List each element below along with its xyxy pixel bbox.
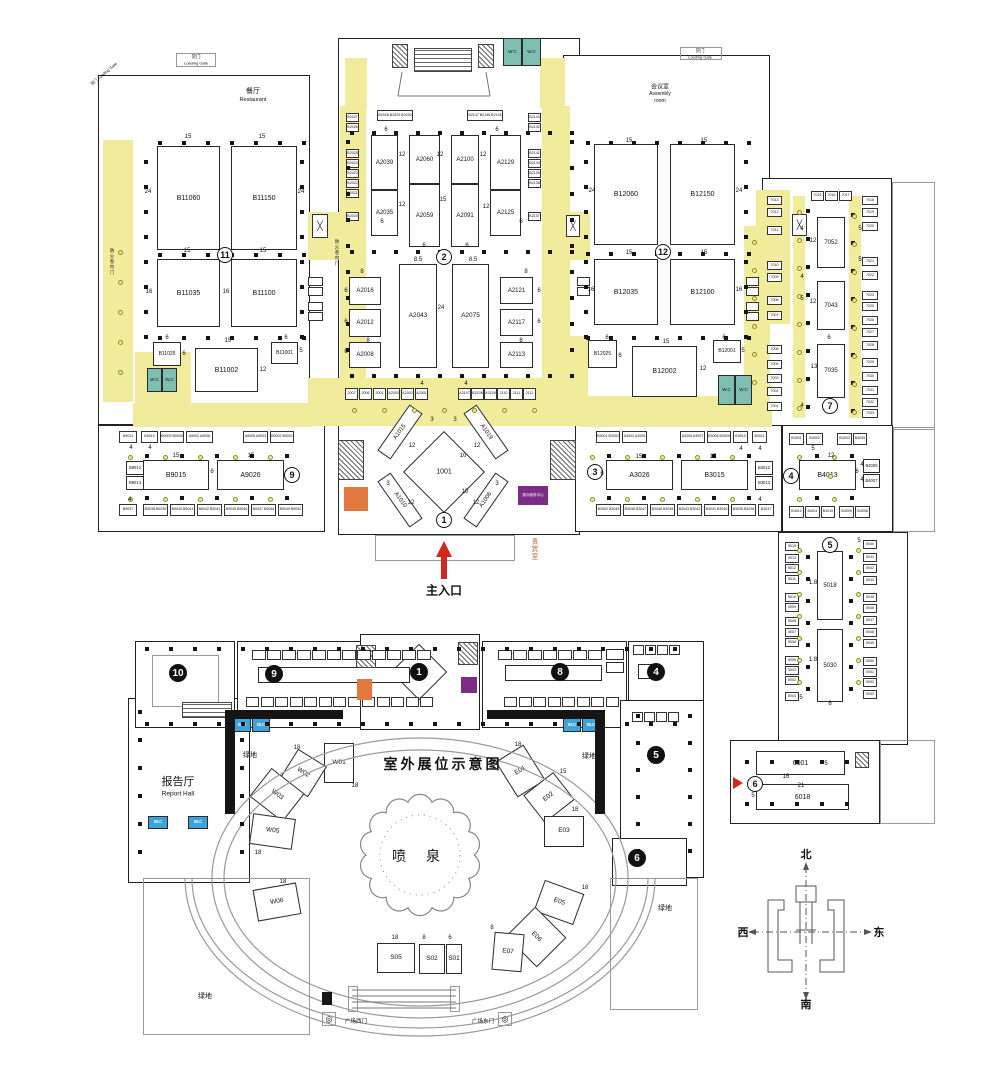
column-dot — [193, 722, 197, 726]
dimension-label: 15 — [710, 454, 717, 460]
light-symbol — [797, 266, 802, 271]
dimension-label: 4 — [739, 446, 742, 452]
dimension-label: 4 — [758, 497, 761, 503]
dimension-label: 6 — [828, 701, 831, 707]
column-dot — [609, 252, 613, 256]
dimension-label: 15 — [259, 134, 266, 140]
column-dot — [849, 577, 853, 581]
column-dot — [285, 454, 289, 458]
column-dot — [570, 348, 574, 352]
column-dot — [649, 722, 653, 726]
light-symbol — [695, 455, 700, 460]
light-symbol — [752, 380, 757, 385]
column-dot — [144, 335, 148, 339]
restaurant-label: 餐厅 — [246, 86, 260, 96]
column-dot — [394, 131, 398, 135]
column-dot — [570, 250, 574, 254]
light-symbol — [695, 497, 700, 502]
zone-circle-5: 5 — [647, 746, 665, 764]
light-symbol — [752, 324, 757, 329]
column-dot — [241, 647, 245, 651]
column-dot — [815, 496, 819, 500]
column-dot — [482, 250, 486, 254]
light-symbol — [472, 408, 477, 413]
column-dot — [688, 741, 692, 745]
green-space-label: 绿地 — [658, 903, 672, 913]
plaza-west-gate-label: 广场西门 — [345, 1017, 367, 1025]
column-dot — [241, 722, 245, 726]
column-dot — [806, 555, 810, 559]
dimension-label: 18 — [572, 807, 579, 813]
zone-circle-9: 9 — [284, 467, 300, 483]
gate-symbol: ◎ — [326, 1015, 333, 1024]
column-dot — [849, 621, 853, 625]
light-symbol — [752, 352, 757, 357]
column-dot — [806, 265, 810, 269]
light-symbol — [852, 410, 857, 415]
dimension-label: 15 — [260, 248, 267, 254]
zone-circle-4: 4 — [647, 663, 665, 681]
column-dot — [346, 140, 350, 144]
column-dot — [849, 643, 853, 647]
column-dot — [144, 310, 148, 314]
light-symbol — [852, 242, 857, 247]
column-dot — [642, 496, 646, 500]
column-dot — [673, 647, 677, 651]
column-dot — [845, 802, 849, 806]
zone-circle-6: 6 — [747, 776, 763, 792]
dimension-label: 6 — [165, 335, 168, 341]
floor-plan: B11060B11150B11035B11100B11025B11001B110… — [0, 0, 1000, 1078]
column-dot — [850, 454, 854, 458]
column-dot — [570, 322, 574, 326]
dimension-label: 3 — [430, 417, 433, 423]
zone-circle-11: 11 — [217, 247, 233, 263]
light-symbol — [233, 497, 238, 502]
column-dot — [206, 336, 210, 340]
dimension-label: 10 — [462, 489, 469, 495]
light-symbol — [198, 455, 203, 460]
light-symbol — [625, 455, 630, 460]
light-symbol — [852, 326, 857, 331]
compass-north-label: 北 — [801, 846, 812, 862]
column-dot — [504, 250, 508, 254]
dimension-label: 4 — [860, 477, 863, 483]
column-dot — [372, 131, 376, 135]
dimension-label: 6 — [182, 351, 185, 357]
wc-room: W.C — [735, 375, 752, 405]
column-dot — [526, 374, 530, 378]
column-dot — [601, 722, 605, 726]
light-symbol — [856, 636, 861, 641]
column-dot — [144, 160, 148, 164]
dimension-label: 12 — [483, 204, 490, 210]
column-dot — [138, 766, 142, 770]
main-entrance-label: 主入口 — [426, 582, 462, 599]
column-dot — [806, 377, 810, 381]
wc-room: W.C — [162, 368, 177, 392]
column-dot — [553, 647, 557, 651]
dimension-label: 4 — [464, 381, 467, 387]
service-box-purple — [461, 677, 477, 693]
light-symbol — [268, 455, 273, 460]
column-dot — [806, 293, 810, 297]
light-symbol — [856, 658, 861, 663]
column-dot — [586, 252, 590, 256]
column-dot — [584, 335, 588, 339]
dimension-label: 4 — [860, 462, 863, 468]
light-symbol — [163, 497, 168, 502]
column-dot — [438, 131, 442, 135]
column-dot — [607, 496, 611, 500]
dimension-label: 15 — [626, 250, 633, 256]
column-dot — [636, 795, 640, 799]
column-dot — [806, 599, 810, 603]
column-dot — [265, 647, 269, 651]
light-symbol — [828, 474, 833, 479]
column-dot — [849, 599, 853, 603]
column-dot — [300, 335, 304, 339]
column-dot — [254, 141, 258, 145]
column-dot — [632, 336, 636, 340]
column-dot — [795, 760, 799, 764]
column-dot — [350, 374, 354, 378]
light-symbol — [660, 497, 665, 502]
dimension-label: 16 — [223, 289, 230, 295]
column-dot — [553, 722, 557, 726]
dimension-label: 24 — [589, 188, 596, 194]
light-symbol — [852, 298, 857, 303]
dimension-label: 6 — [210, 469, 213, 475]
booth-1001-label: 1001 — [436, 469, 452, 476]
column-dot — [688, 768, 692, 772]
dimension-label: 6 — [605, 335, 608, 341]
column-dot — [636, 714, 640, 718]
column-dot — [636, 768, 640, 772]
column-dot — [584, 160, 588, 164]
light-symbol — [852, 270, 857, 275]
column-dot — [744, 160, 748, 164]
column-dot — [744, 235, 748, 239]
light-symbol — [852, 214, 857, 219]
dimension-label: 18 — [280, 879, 287, 885]
zone-circle-7: 7 — [822, 398, 838, 414]
column-dot — [688, 714, 692, 718]
column-dot — [217, 722, 221, 726]
column-dot — [806, 349, 810, 353]
column-dot — [416, 250, 420, 254]
dimension-label: 13 — [811, 364, 818, 370]
fountain-label: 喷 泉 — [392, 846, 448, 866]
column-dot — [254, 336, 258, 340]
column-dot — [438, 374, 442, 378]
report-hall-label-en: Report Hall — [162, 791, 195, 798]
column-dot — [300, 210, 304, 214]
dimension-label: 5 — [811, 446, 814, 452]
column-dot — [180, 454, 184, 458]
column-dot — [460, 374, 464, 378]
column-dot — [584, 185, 588, 189]
light-symbol — [730, 455, 735, 460]
dimension-label: 5 — [741, 348, 744, 354]
dimension-label: 6 — [519, 219, 522, 225]
column-dot — [806, 621, 810, 625]
column-dot — [570, 374, 574, 378]
column-dot — [815, 454, 819, 458]
column-dot — [416, 374, 420, 378]
dimension-label: 15 — [184, 248, 191, 254]
wc-room: W.C — [522, 38, 541, 66]
dimension-label: 24 — [736, 188, 743, 194]
dimension-label: 15 — [185, 134, 192, 140]
column-dot — [526, 250, 530, 254]
column-dot — [570, 131, 574, 135]
column-dot — [240, 794, 244, 798]
column-dot — [302, 253, 306, 257]
dimension-label: 8 — [524, 269, 527, 275]
column-dot — [457, 647, 461, 651]
dimension-label: 5 — [858, 257, 861, 263]
column-dot — [278, 141, 282, 145]
dimension-label: 6 — [344, 288, 347, 294]
dimension-label: 5 — [299, 348, 302, 354]
wc-room: W.C — [147, 368, 162, 392]
column-dot — [138, 710, 142, 714]
zone-circle-1: 1 — [436, 512, 452, 528]
light-symbol — [797, 548, 802, 553]
light-symbol — [852, 354, 857, 359]
column-dot — [570, 244, 574, 248]
column-dot — [820, 802, 824, 806]
column-dot — [548, 374, 552, 378]
column-dot — [394, 374, 398, 378]
column-dot — [636, 822, 640, 826]
dimension-label: 4 — [129, 445, 132, 451]
column-dot — [182, 336, 186, 340]
light-symbol — [797, 592, 802, 597]
column-dot — [745, 760, 749, 764]
light-symbol — [752, 296, 757, 301]
column-dot — [806, 321, 810, 325]
dimension-label: 12 — [399, 152, 406, 158]
report-hall-label: 报告厅 — [162, 773, 195, 789]
wc-room: W.C — [148, 816, 168, 829]
dimension-label: 16 — [588, 287, 595, 293]
column-dot — [385, 722, 389, 726]
column-dot — [806, 687, 810, 691]
elevator-icon: ╳ — [312, 214, 328, 238]
dimension-label: 15 — [173, 453, 180, 459]
column-dot — [504, 374, 508, 378]
column-dot — [144, 260, 148, 264]
assembly-room-label-en: Assembly — [649, 91, 671, 97]
zone-circle-6: 6 — [628, 849, 646, 867]
column-dot — [215, 454, 219, 458]
light-symbol — [590, 455, 595, 460]
dimension-label: 18 — [582, 885, 589, 891]
column-dot — [182, 141, 186, 145]
green-space-label: 绿地 — [198, 991, 212, 1001]
column-dot — [138, 850, 142, 854]
dimension-label: 3 — [386, 481, 389, 487]
light-symbol — [797, 378, 802, 383]
hall-6-entrance-marker — [733, 777, 743, 789]
column-dot — [701, 336, 705, 340]
wc-room: W.C — [718, 375, 735, 405]
light-symbol — [590, 497, 595, 502]
column-dot — [240, 822, 244, 826]
assembly-room-label-en: room — [654, 98, 665, 104]
wc-room: W.C — [188, 816, 208, 829]
service-box-orange — [344, 487, 368, 511]
light-symbol — [856, 592, 861, 597]
column-dot — [712, 496, 716, 500]
column-dot — [409, 722, 413, 726]
column-dot — [849, 687, 853, 691]
light-symbol — [856, 570, 861, 575]
column-dot — [770, 760, 774, 764]
column-dot — [724, 141, 728, 145]
column-dot — [144, 235, 148, 239]
column-dot — [230, 141, 234, 145]
column-dot — [138, 794, 142, 798]
dimension-label: 6 — [284, 335, 287, 341]
dimension-label: 6 — [495, 127, 498, 133]
column-dot — [350, 131, 354, 135]
column-dot — [745, 802, 749, 806]
column-dot — [584, 210, 588, 214]
zone-circle-2: 2 — [436, 249, 452, 265]
column-dot — [747, 252, 751, 256]
column-dot — [678, 336, 682, 340]
light-symbol — [268, 497, 273, 502]
column-dot — [609, 141, 613, 145]
dimension-label: 12 — [409, 443, 416, 449]
loading-gate-label: 货门 — [192, 54, 201, 60]
main-entrance-arrow — [436, 541, 452, 579]
column-dot — [300, 285, 304, 289]
dimension-label: 6 — [384, 127, 387, 133]
dimension-label: 12 — [700, 366, 707, 372]
compass-south-label: 南 — [801, 996, 812, 1012]
dimension-label: 4 — [758, 446, 761, 452]
loading-gate-label: 货门 — [696, 48, 705, 54]
column-dot — [607, 454, 611, 458]
dimension-label: 12 — [473, 500, 480, 506]
light-symbol — [797, 350, 802, 355]
wall-segment — [487, 710, 605, 719]
column-dot — [677, 496, 681, 500]
column-dot — [250, 496, 254, 500]
dimension-label: 6 — [827, 335, 830, 341]
light-symbol — [660, 455, 665, 460]
column-dot — [215, 496, 219, 500]
column-dot — [649, 647, 653, 651]
zone-circle-1: 1 — [410, 663, 428, 681]
zone-circle-12: 12 — [655, 244, 671, 260]
dimension-label: 6 — [448, 935, 451, 941]
loading-gate-label-en: Loading Gate — [184, 61, 208, 66]
light-symbol — [752, 268, 757, 273]
column-dot — [609, 336, 613, 340]
light-symbol — [797, 680, 802, 685]
column-dot — [158, 336, 162, 340]
column-dot — [240, 766, 244, 770]
dimension-label: 8.5 — [469, 257, 477, 263]
column-dot — [849, 555, 853, 559]
column-dot — [169, 722, 173, 726]
dimension-label: 6 — [422, 243, 425, 249]
column-dot — [744, 310, 748, 314]
column-dot — [548, 131, 552, 135]
column-dot — [289, 647, 293, 651]
wall-segment — [322, 992, 332, 1005]
column-dot — [526, 131, 530, 135]
column-dot — [577, 722, 581, 726]
column-dot — [724, 252, 728, 256]
column-dot — [145, 454, 149, 458]
dimension-label: 5 — [800, 296, 803, 302]
dimension-label: 6 — [344, 319, 347, 325]
column-dot — [577, 647, 581, 651]
light-symbol — [797, 455, 802, 460]
light-symbol — [797, 636, 802, 641]
dimension-label: 6 — [537, 319, 540, 325]
light-symbol — [752, 240, 757, 245]
vip-room-label: 贵宾室 — [528, 538, 538, 561]
column-dot — [145, 496, 149, 500]
dimension-label: 18 — [515, 742, 522, 748]
dimension-label: 6 — [344, 349, 347, 355]
column-dot — [570, 270, 574, 274]
dimension-label: 18 — [255, 850, 262, 856]
light-symbol — [532, 408, 537, 413]
dimension-label: 4 — [420, 381, 423, 387]
column-dot — [548, 250, 552, 254]
column-dot — [372, 250, 376, 254]
dimension-label: 6 — [380, 219, 383, 225]
column-dot — [433, 647, 437, 651]
column-dot — [385, 647, 389, 651]
dimension-label: 8 — [422, 935, 425, 941]
loading-gate-label-en: Loading Gate — [688, 55, 712, 60]
column-dot — [806, 209, 810, 213]
light-symbol — [198, 497, 203, 502]
column-dot — [240, 850, 244, 854]
light-symbol — [852, 382, 857, 387]
column-dot — [849, 665, 853, 669]
column-dot — [138, 822, 142, 826]
column-dot — [747, 496, 751, 500]
light-symbol — [856, 614, 861, 619]
column-dot — [158, 253, 162, 257]
dimension-label: 16 — [736, 287, 743, 293]
column-dot — [744, 185, 748, 189]
plaza-east-gate-label: 广场东门 — [472, 1017, 494, 1025]
light-symbol — [382, 408, 387, 413]
light-symbol — [118, 370, 123, 375]
dimension-label: 6 — [537, 288, 540, 294]
dimension-label: 12 — [437, 152, 444, 158]
light-symbol — [233, 455, 238, 460]
column-dot — [770, 802, 774, 806]
dimension-label: 4 — [800, 403, 803, 409]
column-dot — [505, 647, 509, 651]
dimension-label: 8 — [366, 338, 369, 344]
compass-west-label: 西 — [738, 924, 749, 940]
zone-circle-4: 4 — [783, 468, 799, 484]
dimension-label: 15 — [248, 453, 255, 459]
